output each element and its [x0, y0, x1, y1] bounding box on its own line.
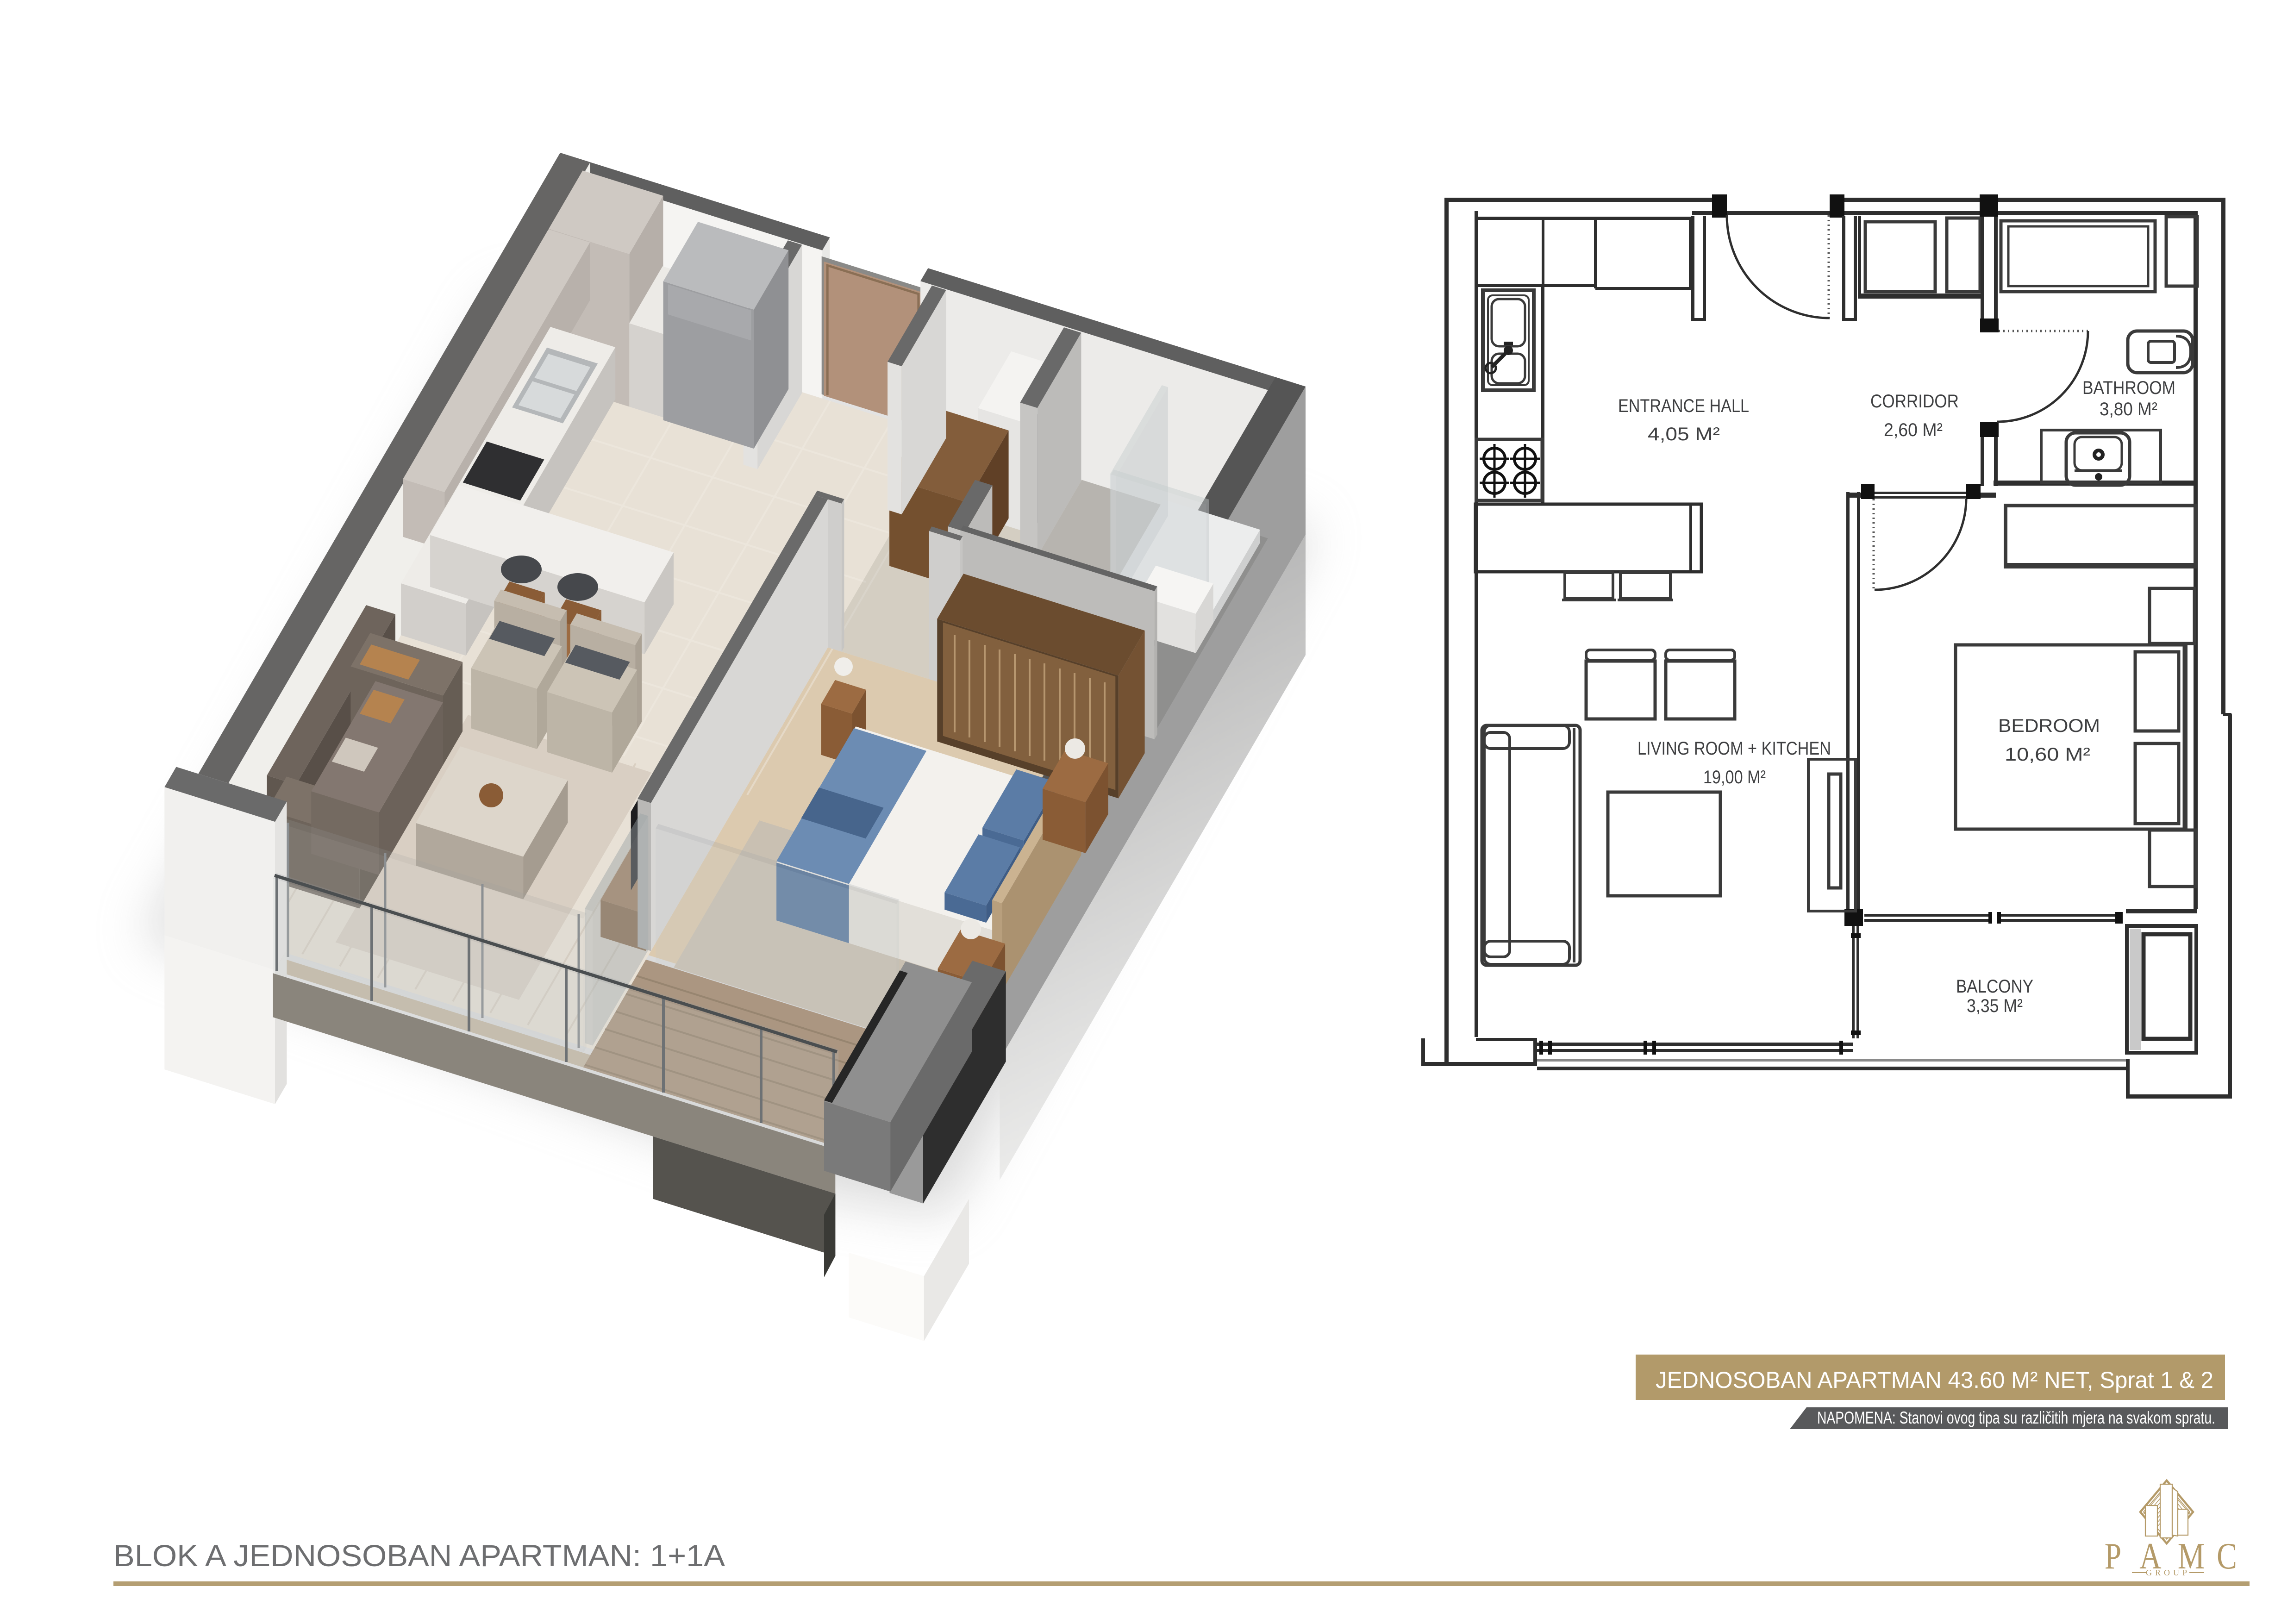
- svg-text:3,80 M²: 3,80 M²: [2100, 399, 2157, 419]
- svg-text:P: P: [2105, 1536, 2121, 1577]
- svg-text:3,35 M²: 3,35 M²: [1967, 996, 2023, 1016]
- svg-text:BLOK A JEDNOSOBAN APARTMAN: 1+: BLOK A JEDNOSOBAN APARTMAN: 1+1A: [113, 1538, 725, 1573]
- svg-text:ENTRANCE HALL: ENTRANCE HALL: [1618, 396, 1749, 416]
- svg-text:19,00 M²: 19,00 M²: [1703, 767, 1766, 787]
- svg-text:BALCONY: BALCONY: [1956, 976, 2033, 997]
- svg-text:JEDNOSOBAN APARTMAN 43.60 M² N: JEDNOSOBAN APARTMAN 43.60 M² NET, Sprat …: [1656, 1367, 2213, 1393]
- svg-text:C: C: [2217, 1536, 2237, 1577]
- svg-text:4,05 M²: 4,05 M²: [1648, 424, 1720, 444]
- svg-text:BEDROOM: BEDROOM: [1998, 716, 2100, 736]
- svg-text:LIVING ROOM + KITCHEN: LIVING ROOM + KITCHEN: [1637, 738, 1831, 759]
- svg-text:10,60 M²: 10,60 M²: [2005, 744, 2090, 765]
- svg-text:NAPOMENA: Stanovi ovog tipa su: NAPOMENA: Stanovi ovog tipa su različiti…: [1817, 1408, 2215, 1427]
- svg-text:GROUP: GROUP: [2146, 1568, 2190, 1577]
- svg-text:BATHROOM: BATHROOM: [2082, 378, 2175, 398]
- svg-text:CORRIDOR: CORRIDOR: [1870, 391, 1959, 412]
- svg-text:2,60 M²: 2,60 M²: [1884, 420, 1943, 440]
